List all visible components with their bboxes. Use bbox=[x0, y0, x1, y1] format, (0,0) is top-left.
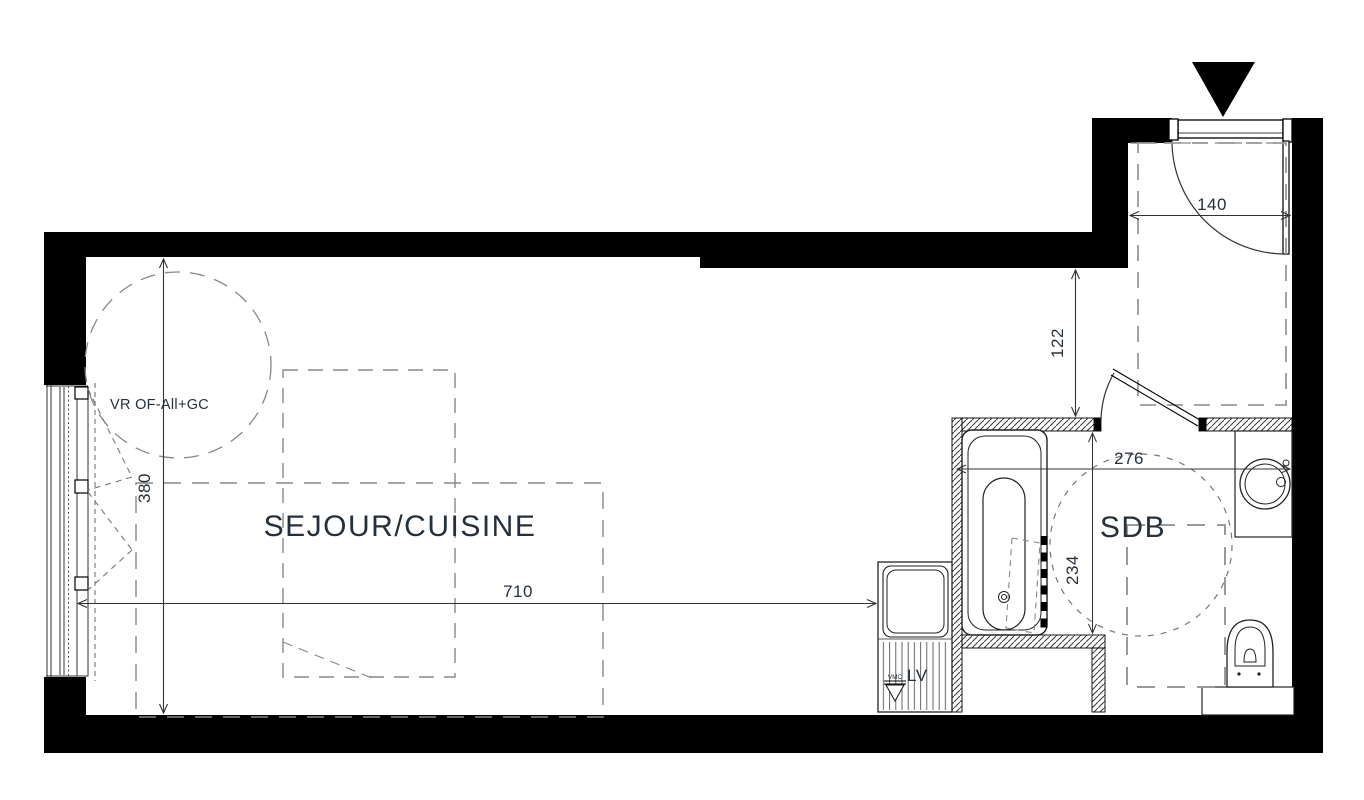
vent-label-vmc: VMC bbox=[888, 674, 903, 681]
window-sliding-frame bbox=[77, 387, 88, 676]
exterior-walls bbox=[44, 118, 1323, 753]
turning-circle-sdb bbox=[1050, 454, 1232, 636]
window-left bbox=[45, 383, 132, 681]
dim-entry-width-label: 140 bbox=[1197, 195, 1227, 214]
bath-wall-bottom-vertical bbox=[1092, 648, 1105, 712]
entry-arrow-icon bbox=[1192, 62, 1255, 117]
toilet-bowl bbox=[1227, 620, 1273, 687]
dim-bath-depth-label: 234 bbox=[1063, 555, 1082, 585]
room-label-sdb: SDB bbox=[1100, 511, 1166, 544]
dimension-bath-depth bbox=[1089, 433, 1097, 633]
appliance-label-lv: LV bbox=[907, 666, 928, 685]
window-panel-top bbox=[75, 387, 88, 399]
toilet bbox=[1202, 620, 1294, 715]
window-panel-bottom bbox=[75, 577, 88, 590]
right-wall bbox=[1292, 118, 1323, 753]
door-post-left bbox=[1169, 119, 1178, 140]
top-wall-right bbox=[700, 232, 1128, 268]
bath-wall-top-left bbox=[962, 418, 1100, 431]
entry-zone-outline bbox=[1138, 143, 1286, 405]
entrance-door bbox=[1130, 62, 1292, 254]
dimension-room-width bbox=[78, 600, 876, 608]
dim-room-depth-label: 380 bbox=[135, 473, 154, 503]
door-jamb-right bbox=[1199, 418, 1206, 431]
entrance-sill bbox=[1178, 120, 1283, 138]
door-jamb-left bbox=[1094, 418, 1101, 431]
washbasin-bowl bbox=[1240, 459, 1290, 509]
dim-entry-depth-label: 122 bbox=[1048, 328, 1067, 358]
window-spec-label: VR OF-All+GC bbox=[110, 397, 209, 413]
bathroom-door-leaf bbox=[1111, 375, 1198, 426]
left-wall-upper bbox=[44, 232, 86, 385]
sink-outer bbox=[883, 566, 948, 637]
furniture-diagonal bbox=[283, 642, 372, 678]
entry-wall-left bbox=[1092, 118, 1128, 268]
bathroom-door-swing-arc bbox=[1101, 373, 1114, 424]
sdb-zone-outline bbox=[1127, 525, 1225, 687]
door-post-right bbox=[1283, 119, 1292, 142]
washbasin bbox=[1235, 431, 1292, 537]
bath-wall-left-vertical bbox=[952, 418, 962, 712]
kitchen-sink-unit bbox=[878, 562, 952, 712]
dim-bath-width-label: 276 bbox=[1114, 449, 1144, 468]
floor-plan-page: LV VMC 140 122 276 234 710 bbox=[0, 0, 1364, 800]
toilet-platform bbox=[1202, 687, 1294, 715]
floor-plan-drawing: LV VMC 140 122 276 234 710 bbox=[0, 0, 1364, 800]
entry-lintel bbox=[1128, 118, 1172, 143]
bathroom-door bbox=[1101, 369, 1200, 426]
bottom-wall bbox=[44, 715, 1323, 753]
dimension-room-depth bbox=[160, 259, 168, 713]
bath-wall-top-right bbox=[1206, 418, 1292, 431]
turning-circle-sejour bbox=[85, 272, 271, 458]
window-panel-middle bbox=[75, 480, 88, 493]
entrance-door-swing-arc bbox=[1172, 141, 1285, 254]
dimension-entry-depth bbox=[1072, 270, 1080, 416]
top-wall-left bbox=[44, 232, 700, 257]
bathtub bbox=[962, 430, 1047, 635]
dim-room-width-label: 710 bbox=[503, 582, 533, 601]
left-wall-lower bbox=[44, 677, 86, 717]
bath-wall-bottom-horizontal bbox=[962, 635, 1105, 648]
room-label-sejour: SEJOUR/CUISINE bbox=[264, 510, 537, 543]
bathtub-basin bbox=[983, 478, 1025, 630]
